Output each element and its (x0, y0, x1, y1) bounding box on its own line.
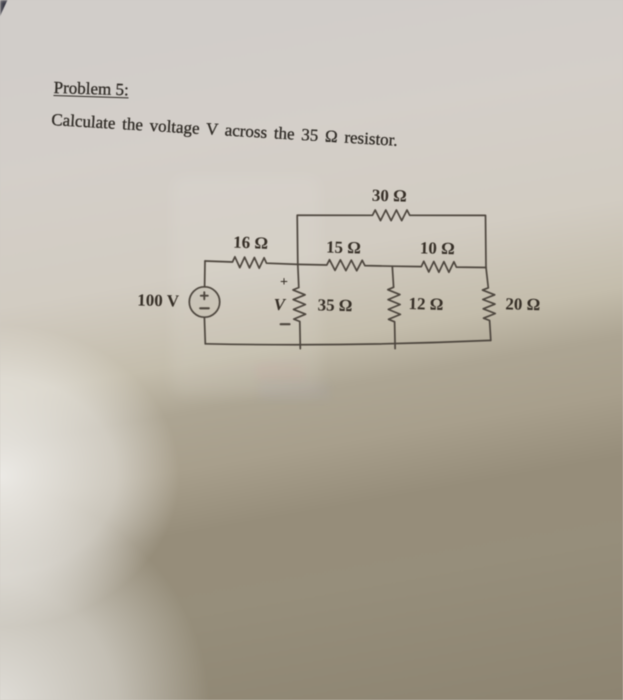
svg-text:35 Ω: 35 Ω (317, 295, 352, 315)
svg-text:V: V (274, 295, 287, 314)
svg-text:30 Ω: 30 Ω (372, 186, 407, 206)
svg-text:15 Ω: 15 Ω (326, 238, 361, 258)
svg-text:16 Ω: 16 Ω (233, 233, 269, 253)
svg-text:100 V: 100 V (137, 290, 180, 310)
svg-text:20 Ω: 20 Ω (505, 294, 540, 314)
svg-text:+: + (280, 275, 288, 290)
svg-text:12 Ω: 12 Ω (408, 294, 443, 314)
svg-text:10 Ω: 10 Ω (420, 238, 455, 258)
